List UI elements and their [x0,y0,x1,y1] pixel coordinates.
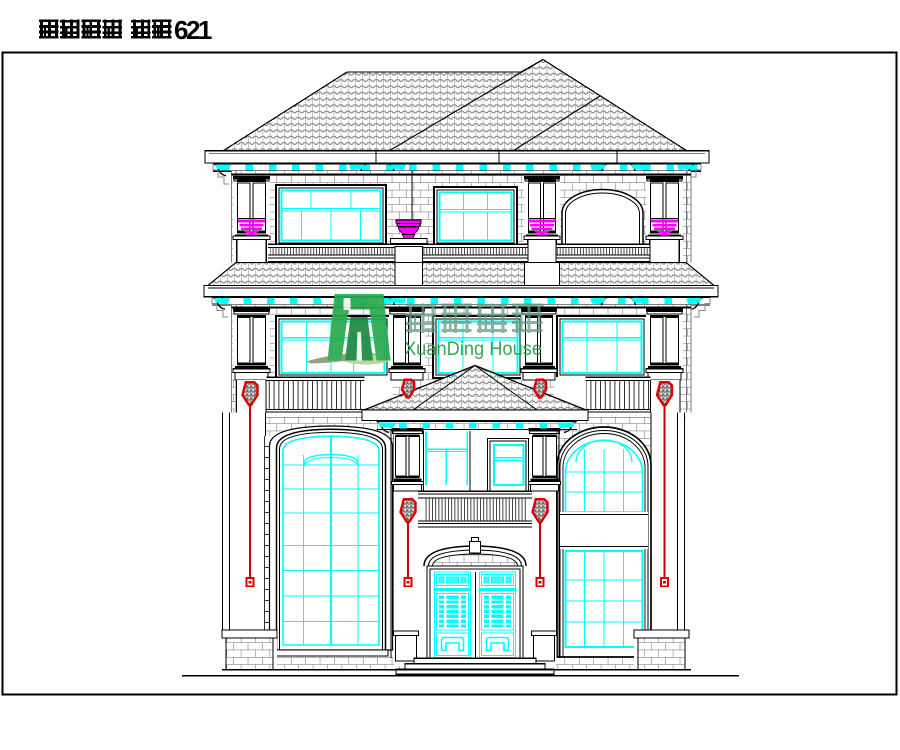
svg-text:XuanDing House: XuanDing House [404,339,542,360]
svg-text:621: 621 [174,15,212,45]
